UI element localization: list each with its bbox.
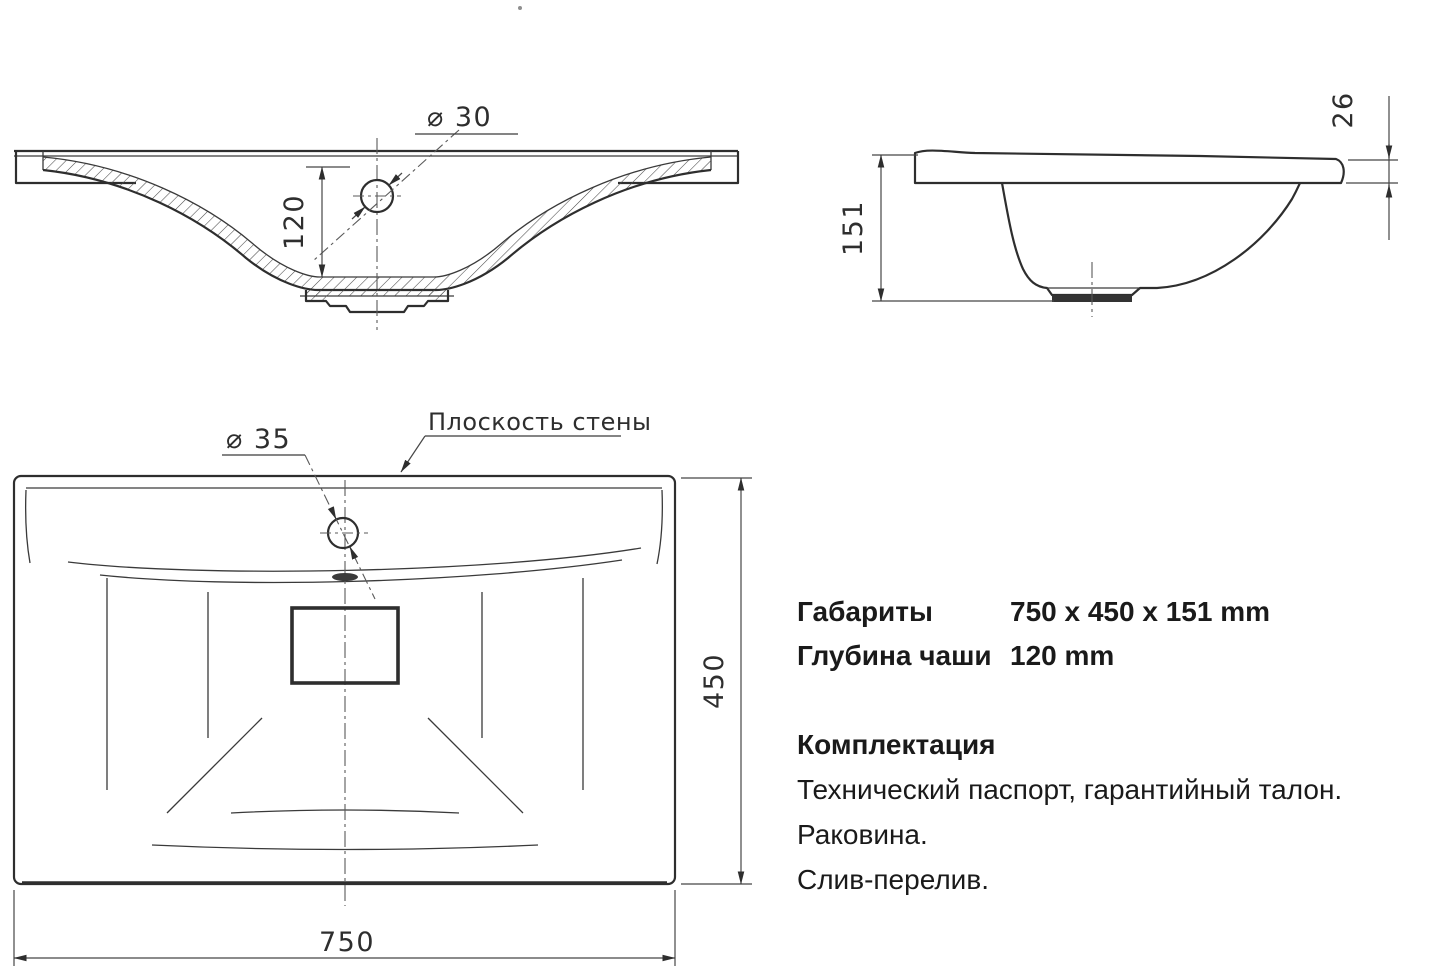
spec-row-dimensions: Габариты 750 x 450 x 151 mm — [797, 590, 1437, 634]
diameter-30-label: ⌀ 30 — [427, 102, 492, 133]
bowl-edge-curve-upper — [68, 548, 641, 571]
bowl-depth-value: 120 — [279, 194, 310, 250]
bowl-edge-curve-lower — [100, 560, 622, 582]
package-item-sink: Раковина. — [797, 812, 1437, 857]
depth-value: 450 — [699, 653, 730, 709]
side-deck-profile — [915, 151, 1344, 183]
overflow-slot — [332, 573, 358, 581]
front-section-view: ⌀ 30 120 — [14, 102, 738, 330]
width-value: 750 — [319, 927, 375, 958]
width-dimension: 750 — [14, 890, 675, 966]
package-title: Комплектация — [797, 723, 1437, 767]
diameter-35-callout: ⌀ 35 — [222, 424, 375, 599]
rim-thickness-dimension: 26 — [1328, 91, 1398, 240]
top-plan-view: ⌀ 35 Плоскость стены 450 750 — [14, 408, 752, 966]
wall-plane-callout: Плоскость стены — [401, 408, 651, 472]
side-bowl-profile — [1002, 183, 1300, 295]
technical-datasheet-page: { "drawing": { "front_view": { "faucet_h… — [0, 0, 1443, 976]
bowl-depth-label: Глубина чаши — [797, 634, 1010, 678]
scan-artifact-dot — [518, 6, 522, 10]
dimensions-label: Габариты — [797, 590, 1010, 634]
inner-rim-left — [26, 490, 30, 563]
diameter-30-callout: ⌀ 30 — [313, 102, 518, 261]
inner-rim-right — [657, 490, 662, 564]
side-section-view: 151 26 — [838, 91, 1398, 317]
bowl-depth-dimension: 120 — [279, 167, 350, 277]
package-item-drain: Слив-перелив. — [797, 857, 1437, 902]
spec-block: Габариты 750 x 450 x 151 mm Глубина чаши… — [797, 590, 1437, 902]
depth-dimension: 450 — [681, 478, 752, 884]
height-value: 151 — [838, 200, 869, 256]
package-item-documents: Технический паспорт, гарантийный талон. — [797, 767, 1437, 812]
rim-thickness-value: 26 — [1328, 91, 1359, 128]
wall-plane-label: Плоскость стены — [428, 408, 651, 436]
bowl-depth-value-text: 120 mm — [1010, 634, 1114, 678]
diameter-35-label: ⌀ 35 — [226, 424, 291, 455]
spec-row-bowl-depth: Глубина чаши 120 mm — [797, 634, 1437, 678]
height-dimension: 151 — [838, 155, 1054, 301]
dimensions-value: 750 x 450 x 151 mm — [1010, 590, 1270, 634]
